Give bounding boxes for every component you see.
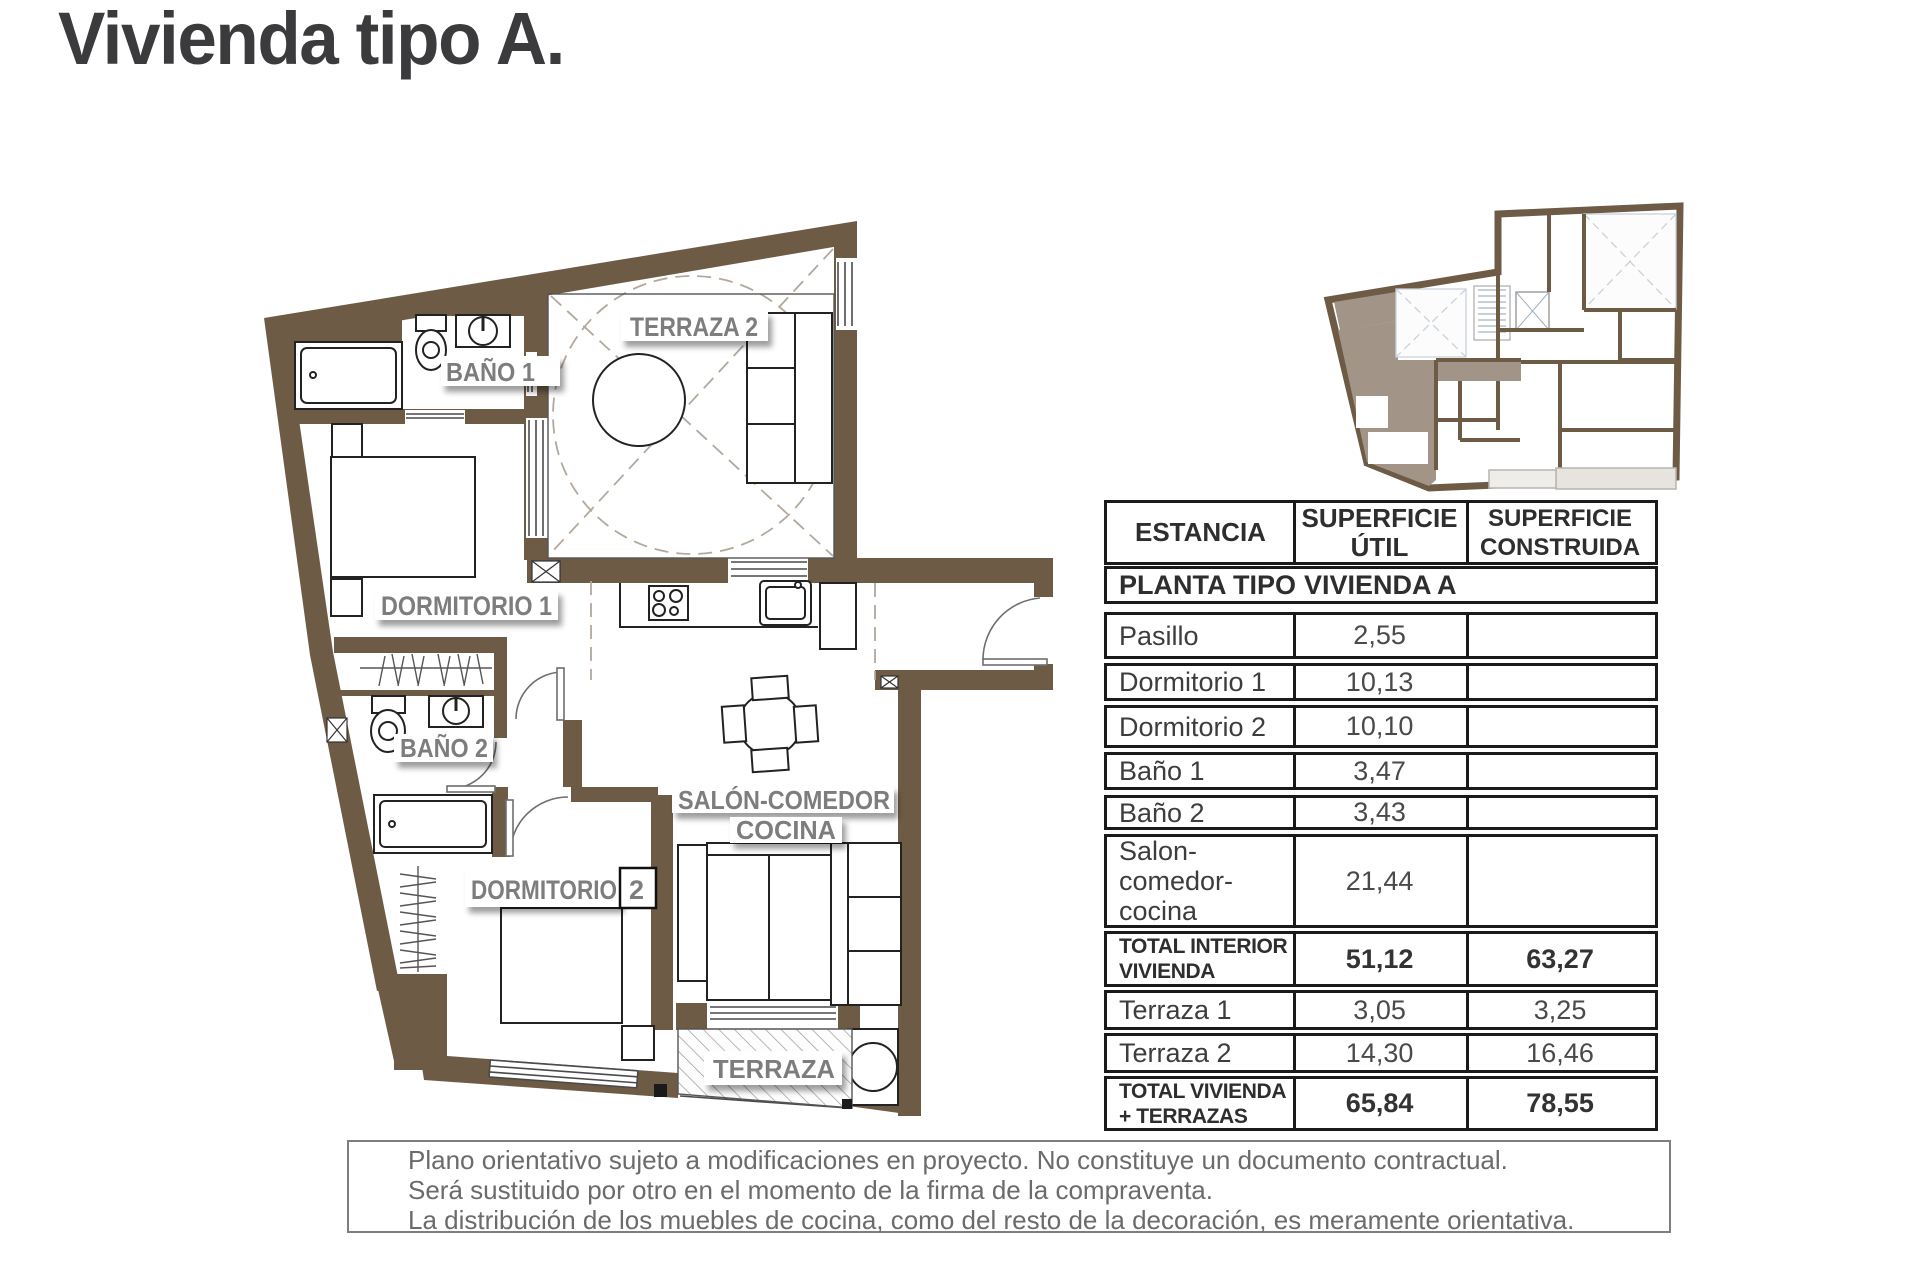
svg-text:2: 2	[629, 875, 644, 905]
svg-text:TERRAZA 2: TERRAZA 2	[630, 312, 758, 342]
svg-text:BAÑO 1: BAÑO 1	[446, 357, 535, 387]
svg-text:DORMITORIO: DORMITORIO	[471, 875, 617, 905]
svg-text:SALÓN-COMEDOR: SALÓN-COMEDOR	[678, 785, 890, 815]
svg-text:DORMITORIO 1: DORMITORIO 1	[381, 591, 552, 621]
svg-text:BAÑO 2: BAÑO 2	[400, 733, 488, 763]
svg-text:TERRAZA: TERRAZA	[713, 1054, 835, 1084]
svg-text:COCINA: COCINA	[736, 815, 836, 845]
